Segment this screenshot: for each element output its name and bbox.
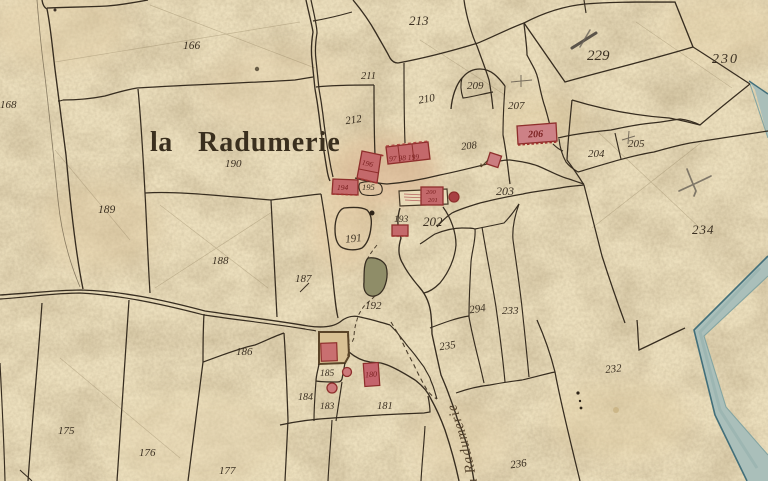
svg-text:229: 229 <box>587 48 610 64</box>
svg-text:202: 202 <box>423 214 443 229</box>
svg-text:la: la <box>150 127 173 158</box>
svg-text:207: 207 <box>508 100 525 112</box>
svg-text:191: 191 <box>345 232 363 246</box>
svg-text:168: 168 <box>0 99 17 111</box>
svg-text:189: 189 <box>98 204 116 216</box>
svg-text:188: 188 <box>212 255 229 267</box>
svg-text:236: 236 <box>510 457 529 471</box>
svg-text:211: 211 <box>361 71 376 82</box>
svg-text:180: 180 <box>365 369 378 379</box>
svg-text:186: 186 <box>236 346 253 358</box>
svg-text:234: 234 <box>692 222 715 237</box>
svg-text:195: 195 <box>362 182 375 192</box>
svg-text:206: 206 <box>527 129 544 141</box>
svg-text:194: 194 <box>337 183 349 192</box>
svg-text:232: 232 <box>605 362 623 376</box>
svg-text:175: 175 <box>58 425 75 437</box>
svg-text:185: 185 <box>320 369 335 379</box>
svg-text:190: 190 <box>225 158 242 170</box>
svg-text:Radumerie: Radumerie <box>198 127 341 158</box>
svg-text:201: 201 <box>428 197 438 204</box>
svg-text:187: 187 <box>295 273 312 285</box>
svg-text:203: 203 <box>496 184 514 198</box>
svg-text:166: 166 <box>183 40 201 52</box>
svg-text:209: 209 <box>467 80 484 92</box>
svg-text:176: 176 <box>139 447 156 459</box>
svg-text:204: 204 <box>588 148 605 160</box>
svg-text:177: 177 <box>219 465 236 477</box>
svg-text:193: 193 <box>394 215 409 225</box>
svg-text:213: 213 <box>409 13 429 28</box>
svg-text:212: 212 <box>345 113 364 127</box>
svg-text:205: 205 <box>628 138 645 150</box>
svg-text:233: 233 <box>502 305 519 317</box>
svg-text:235: 235 <box>439 339 458 353</box>
svg-text:192: 192 <box>365 300 382 312</box>
svg-text:181: 181 <box>377 401 393 412</box>
svg-text:230: 230 <box>712 52 739 67</box>
svg-text:208: 208 <box>461 140 479 153</box>
svg-text:184: 184 <box>298 392 313 403</box>
svg-text:200: 200 <box>426 189 437 196</box>
svg-text:183: 183 <box>320 402 335 412</box>
svg-text:294: 294 <box>469 302 488 316</box>
